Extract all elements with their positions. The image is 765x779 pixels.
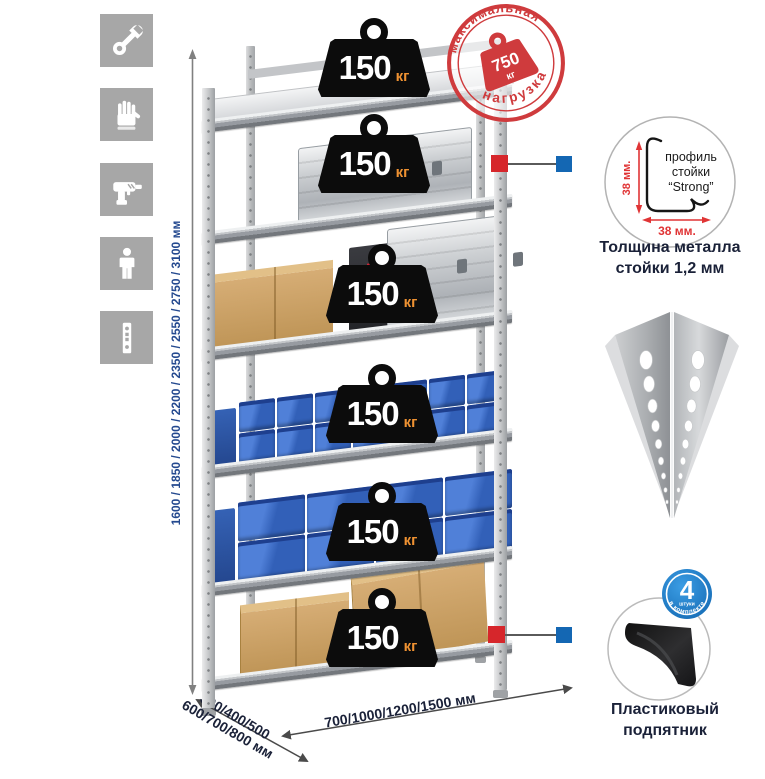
load-unit: кг [396, 68, 410, 85]
profile-dim-vertical: 38 мм. [621, 161, 633, 196]
load-unit: кг [396, 164, 410, 181]
load-unit: кг [404, 294, 418, 311]
shelf-load-badge: 150кг [326, 244, 438, 323]
badge-count: 4 [680, 575, 695, 605]
load-unit: кг [404, 638, 418, 655]
shelf-load-badge: 150кг [318, 18, 430, 97]
metal-thickness-caption: Толщина металла стойки 1,2 мм [585, 238, 755, 280]
profile-label-2: стойки [672, 165, 710, 179]
wrench-icon [100, 14, 153, 67]
profile-label-1: профиль [665, 150, 717, 164]
caption-line: Толщина металла [585, 238, 755, 259]
badge-sub: штуки [679, 602, 695, 608]
person-icon [100, 237, 153, 290]
front-left-post [202, 88, 215, 708]
red-marker-top [491, 155, 508, 172]
profile-label-3: “Strong” [668, 180, 713, 194]
connector-line-bottom [504, 634, 560, 636]
blue-marker-top [556, 156, 572, 172]
upright-profile-icon [100, 311, 153, 364]
height-dimension-line [185, 48, 201, 696]
load-value: 150 [347, 513, 399, 551]
profile-dim-horizontal: 38 мм. [658, 224, 696, 238]
load-unit: кг [404, 414, 418, 431]
load-value: 150 [347, 275, 399, 313]
load-value: 150 [339, 145, 391, 183]
blue-bin [277, 393, 313, 427]
red-marker-bottom [488, 626, 505, 643]
angle-post-image [602, 302, 742, 527]
load-value: 150 [339, 49, 391, 87]
plastic-foot-caption: Пластиковый подпятник [580, 700, 750, 742]
caption-line: подпятник [580, 721, 750, 742]
caption-line: Пластиковый [580, 700, 750, 721]
blue-marker-bottom [556, 627, 572, 643]
gloves-icon [100, 88, 153, 141]
load-value: 150 [347, 395, 399, 433]
post-profile-detail: 38 мм. 38 мм. профиль стойки “Strong” [602, 114, 738, 250]
shelf-load-badge: 150кг [326, 482, 438, 561]
shelf-load-badge: 150кг [326, 364, 438, 443]
load-value: 150 [347, 619, 399, 657]
caption-line: стойки 1,2 мм [585, 259, 755, 280]
height-dimension-label: 1600 / 1850 / 2000 / 2200 / 2350 / 2550 … [169, 133, 183, 613]
included-count-badge: 4 штуки в комплекте [661, 568, 713, 620]
load-unit: кг [404, 532, 418, 549]
drill-icon [100, 163, 153, 216]
shelf-load-badge: 150кг [326, 588, 438, 667]
blue-bin [239, 398, 275, 432]
shelf-load-badge: 150кг [318, 114, 430, 193]
connector-line-top [506, 163, 560, 165]
